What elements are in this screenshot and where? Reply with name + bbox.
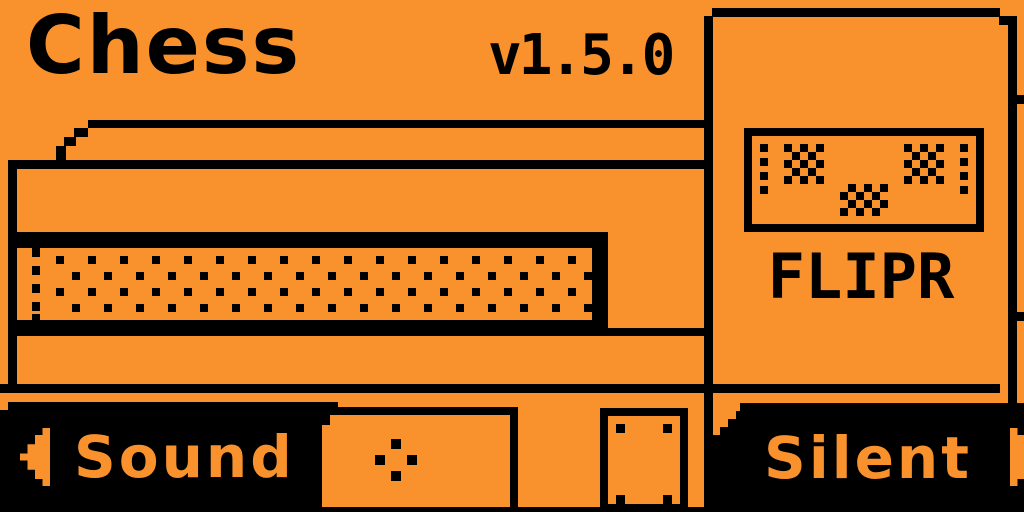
page-title: Chess xyxy=(26,6,301,86)
left-arrow-icon xyxy=(20,428,50,486)
table-edge-line xyxy=(0,384,1000,393)
silent-button[interactable]: Silent xyxy=(712,403,1024,512)
device-name-label: FLIPR xyxy=(706,246,1016,308)
device-screen-face xyxy=(748,132,980,228)
tray-dot-texture xyxy=(48,248,592,320)
sound-button-label: Sound xyxy=(74,423,295,491)
face-eye-left xyxy=(784,144,824,184)
app-screen: Chess v1.5.0 FLIPR Sound Silent xyxy=(0,0,1024,512)
tray-dashed-edge xyxy=(32,248,40,322)
screw-plate xyxy=(604,412,684,508)
sound-button[interactable]: Sound xyxy=(0,402,344,512)
right-arrow-icon xyxy=(1010,428,1024,486)
face-mouth xyxy=(840,184,888,216)
version-label: v1.5.0 xyxy=(488,28,672,84)
ok-hint-right-bar xyxy=(510,407,518,512)
silent-button-label: Silent xyxy=(764,424,972,492)
face-dot-column-left xyxy=(760,144,768,194)
face-eye-right xyxy=(904,144,944,184)
ok-button-hint[interactable] xyxy=(322,415,510,507)
face-dot-column-right xyxy=(960,144,968,194)
ok-hint-top-bar xyxy=(338,407,518,415)
